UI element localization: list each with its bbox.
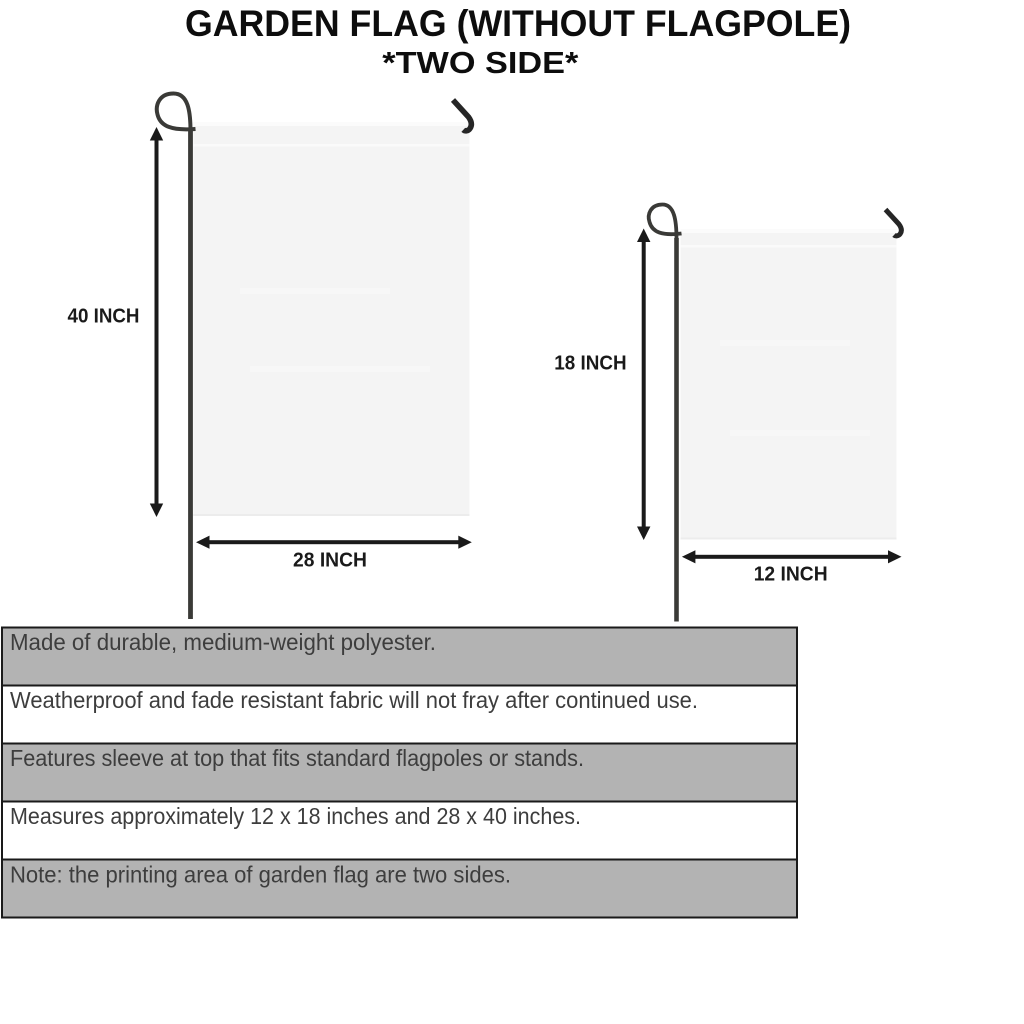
svg-text:40 INCH: 40 INCH — [68, 306, 140, 328]
svg-text:Made of durable, medium-weight: Made of durable, medium-weight polyester… — [10, 629, 436, 655]
svg-text:Features sleeve at top that fi: Features sleeve at top that fits standar… — [10, 745, 584, 771]
svg-text:Note: the printing area of gar: Note: the printing area of garden flag a… — [10, 862, 511, 888]
svg-text:*TWO SIDE*: *TWO SIDE* — [382, 45, 579, 80]
svg-text:12 INCH: 12 INCH — [754, 564, 828, 586]
svg-text:GARDEN FLAG (WITHOUT FLAGPOLE): GARDEN FLAG (WITHOUT FLAGPOLE) — [185, 2, 851, 44]
svg-text:18 INCH: 18 INCH — [554, 353, 626, 375]
svg-text:28 INCH: 28 INCH — [293, 550, 367, 572]
svg-text:Weatherproof and fade resistan: Weatherproof and fade resistant fabric w… — [10, 687, 698, 713]
svg-text:Measures approximately 12 x 18: Measures approximately 12 x 18 inches an… — [10, 803, 581, 829]
